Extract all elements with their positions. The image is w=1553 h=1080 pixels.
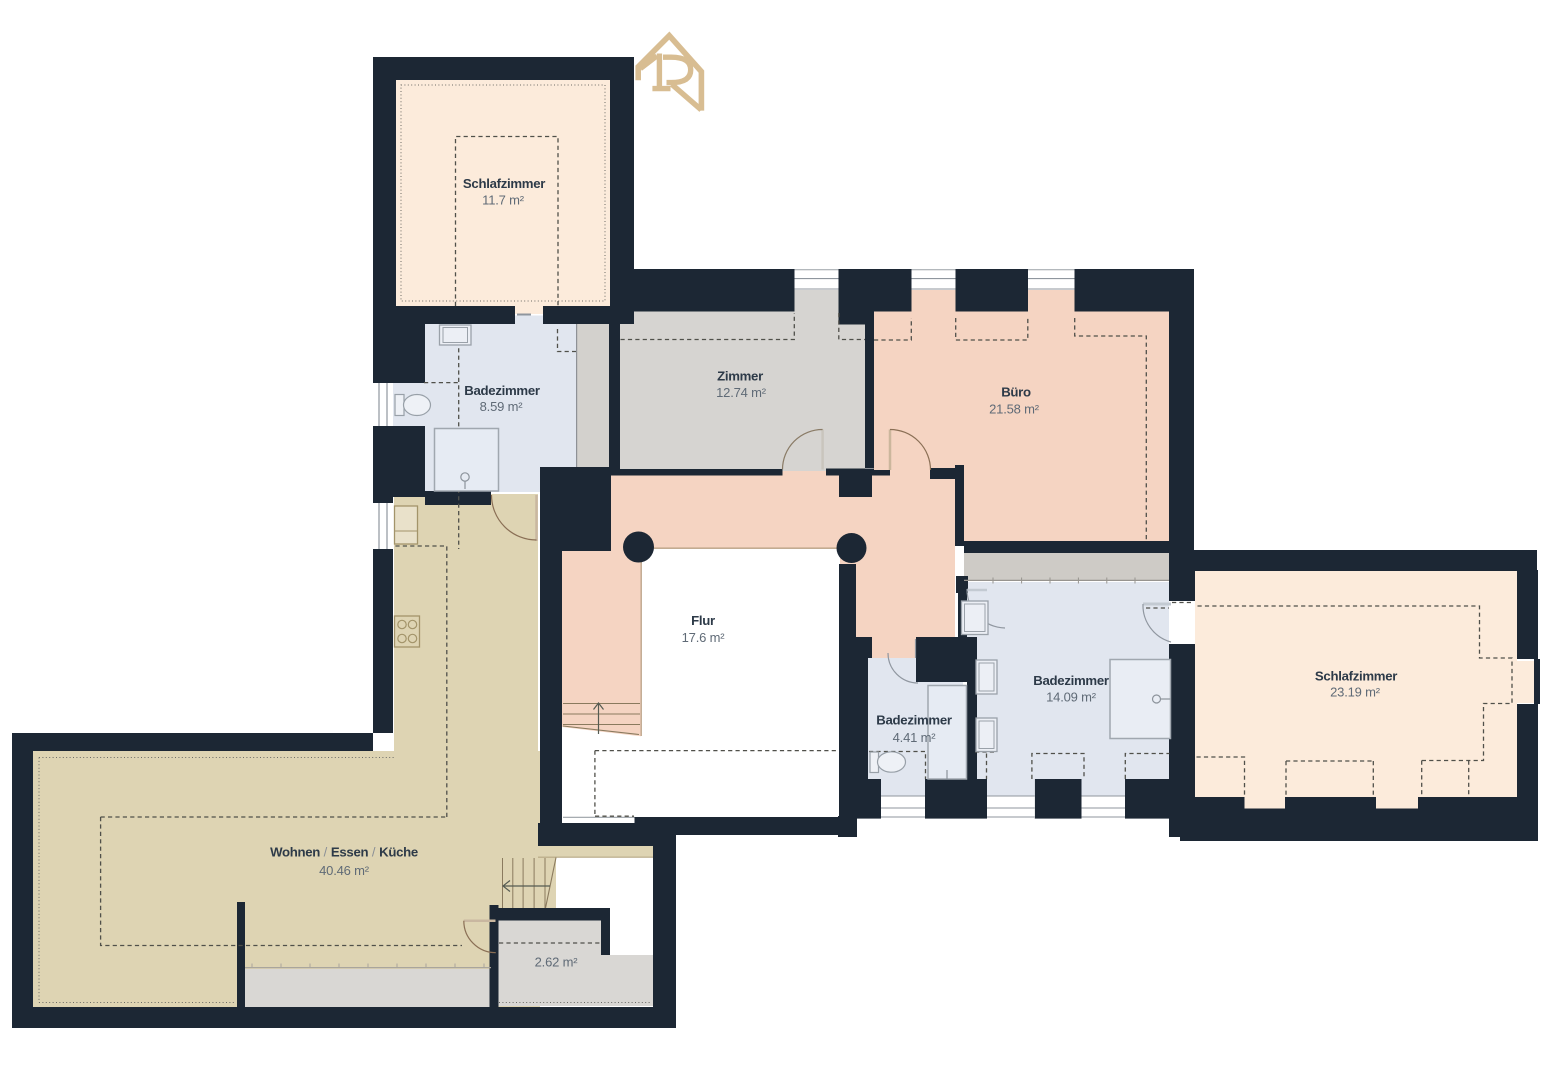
svg-text:Badezimmer: Badezimmer [1033,673,1109,688]
svg-text:Flur: Flur [691,613,715,628]
svg-text:Zimmer: Zimmer [717,369,763,384]
svg-text:11.7 m²: 11.7 m² [482,193,525,208]
svg-text:Badezimmer: Badezimmer [464,383,540,398]
svg-text:Büro: Büro [1001,385,1031,400]
svg-text:2.62 m²: 2.62 m² [535,955,579,970]
svg-text:4.41 m²: 4.41 m² [893,730,937,745]
svg-text:14.09 m²: 14.09 m² [1046,690,1097,705]
svg-text:Schlafzimmer: Schlafzimmer [463,176,545,191]
svg-text:21.58 m²: 21.58 m² [989,402,1040,417]
svg-text:17.6 m²: 17.6 m² [682,630,726,645]
svg-text:8.59 m²: 8.59 m² [480,399,524,414]
svg-text:12.74 m²: 12.74 m² [716,385,767,400]
svg-text:Badezimmer: Badezimmer [876,713,952,728]
svg-text:Wohnen / Essen / Küche: Wohnen / Essen / Küche [270,845,418,860]
svg-text:23.19 m²: 23.19 m² [1330,685,1381,700]
svg-text:40.46 m²: 40.46 m² [319,863,370,878]
svg-text:Schlafzimmer: Schlafzimmer [1315,669,1397,684]
